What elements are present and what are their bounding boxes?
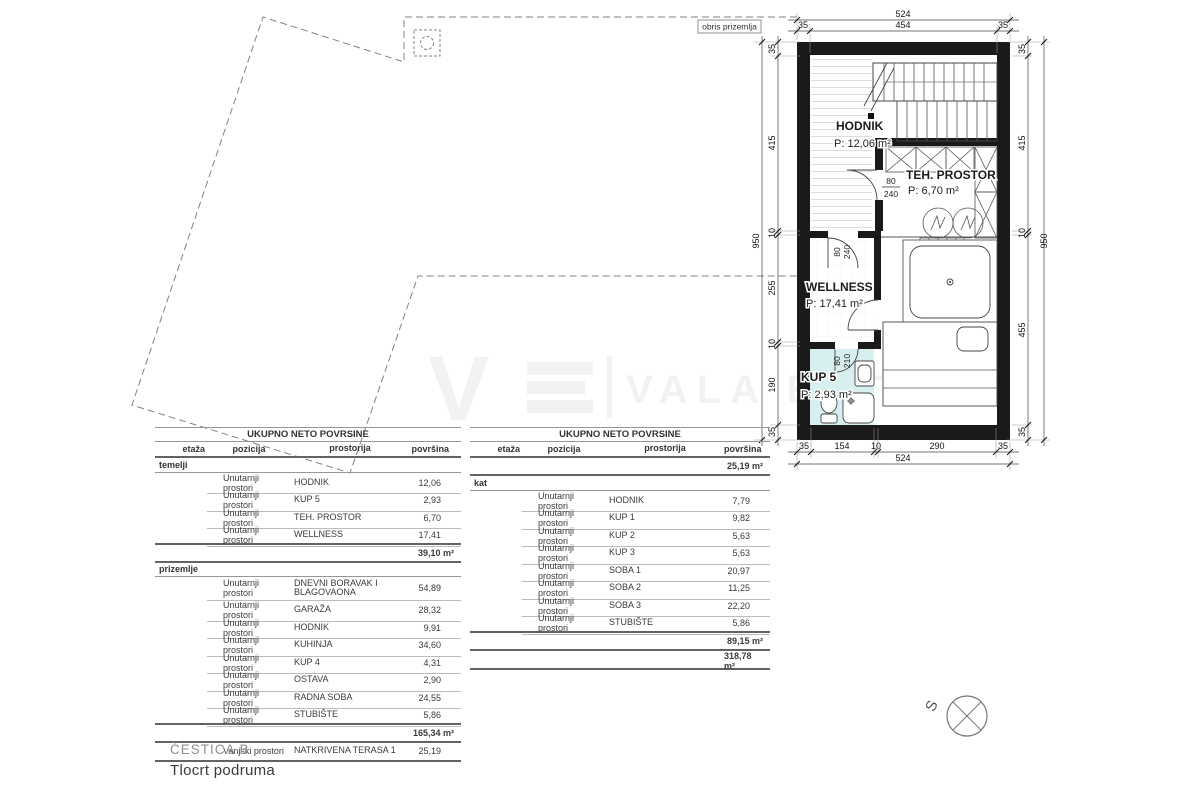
area-table-upper-floor: UKUPNO NETO POVRSINE etaža pozicija pros… [470, 427, 770, 670]
cell-pozicija: Unutarnji prostori [207, 705, 291, 727]
section-sum-row: 39,10 m² [155, 543, 461, 563]
dim-label: 10 [767, 228, 777, 238]
cell-prostorija: STUBIŠTE [291, 705, 409, 727]
cell-prostorija: WELLNESS [291, 525, 409, 547]
interior-wall [875, 200, 883, 231]
col-pozicija: pozicija [207, 442, 291, 456]
table-row: Unutarnji prostori HODNIK 7,79 [470, 491, 770, 509]
interior-wall [875, 138, 997, 146]
door-width: 80 [832, 356, 842, 366]
parcel-label: ČESTICA B [170, 742, 250, 757]
table-row: Unutarnji prostori KUP 1 9,82 [470, 508, 770, 526]
col-pozicija: pozicija [522, 442, 606, 456]
interior-wall [858, 342, 881, 349]
outline-symbol [414, 30, 440, 56]
table-title: UKUPNO NETO POVRSINE [155, 427, 461, 442]
interior-wall [810, 342, 835, 349]
wellness-furniture [883, 240, 997, 406]
col-povrsina: površina [409, 442, 461, 456]
table-row: Unutarnji prostori KUP 2 5,63 [470, 526, 770, 544]
table-title: UKUPNO NETO POVRSINE [470, 427, 770, 442]
dim-label: 154 [834, 441, 849, 451]
floor-plan-sheet: V VALA ESTATE obris prizemlja [0, 0, 1200, 795]
watermark-logo-bar [527, 362, 593, 375]
dim-label: 35 [998, 20, 1008, 30]
section-sum: 89,15 m² [724, 633, 770, 649]
section-sum-row: 89,15 m² [470, 631, 770, 651]
cell-povrsina: 54,89 [409, 577, 461, 601]
door-height: 240 [884, 189, 898, 199]
cell-povrsina: 5,86 [409, 705, 461, 727]
dim-label: 10 [871, 441, 881, 451]
outline-label: obris prizemlja [702, 22, 757, 32]
col-prostorija: prostorija [291, 442, 409, 456]
col-prostorija: prostorija [606, 442, 724, 456]
interior-wall [858, 231, 881, 238]
room-name-kup5: KUP 5 [801, 370, 836, 384]
room-area-wellness: P: 17,41 m² [806, 298, 863, 310]
interior-wall [874, 238, 881, 300]
boiler-icon [953, 208, 983, 238]
section-temelji: temelji [155, 458, 461, 473]
dim-label: 290 [929, 441, 944, 451]
dim-label: 255 [767, 280, 777, 295]
table-row: Unutarnji prostori SOBA 1 20,97 [470, 561, 770, 579]
table-row: Unutarnji prostori KUP 5 2,93 [155, 490, 461, 508]
dim-label: 35 [1017, 44, 1027, 54]
cell-pozicija: Unutarnji prostori [522, 613, 606, 635]
stair-treads-lower [907, 101, 987, 141]
dim-label: 454 [895, 20, 910, 30]
dimensions-right: 35 415 10 455 35 950 [1007, 36, 1050, 446]
col-etaza: etaža [155, 442, 207, 456]
table-column-headers: etaža pozicija prostorija površina [470, 442, 770, 458]
table-row: Unutarnji prostori OSTAVA 2,90 [155, 670, 461, 688]
table-row: Unutarnji prostori SOBA 2 11,25 [470, 578, 770, 596]
dim-label: 455 [1017, 322, 1027, 337]
dim-label: 415 [1017, 135, 1027, 150]
table-row: Unutarnji prostori KUP 4 4,31 [155, 653, 461, 671]
interior-wall [810, 231, 828, 238]
section-sum-row: 165,34 m² [155, 723, 461, 743]
cell-pozicija: Unutarnji prostori [207, 577, 291, 601]
cell-povrsina: 5,86 [724, 613, 770, 635]
jacuzzi-drain-dot [949, 281, 951, 283]
table-row: Unutarnji prostori WELLNESS 17,41 [155, 525, 461, 543]
outline-symbol-circle [421, 37, 434, 50]
grand-total-row: 318,78 m² [470, 651, 770, 670]
room-name-wellness: WELLNESS [806, 280, 873, 294]
room-area-kup5: P: 2,93 m² [801, 389, 852, 401]
table-row: Unutarnji prostori TEH. PROSTOR 6,70 [155, 508, 461, 526]
table-row: Unutarnji prostori RADNA SOBA 24,55 [155, 688, 461, 706]
table-row: Unutarnji prostori STUBIŠTE 5,86 [155, 705, 461, 723]
watermark-logo-bar [527, 381, 585, 394]
room-name-teh-prostor: TEH. PROSTOR [906, 168, 996, 182]
table-row: Unutarnji prostori STUBIŠTE 5,86 [470, 613, 770, 631]
cell-povrsina: 25,19 [409, 743, 461, 760]
dim-label: 950 [1039, 233, 1049, 248]
boiler-mark [961, 216, 975, 230]
dim-label: 10 [1017, 228, 1027, 238]
room-area-teh-prostor: P: 6,70 m² [908, 185, 959, 197]
dim-label: 10 [767, 339, 777, 349]
compass-north-label: S [922, 698, 942, 714]
table-row: Unutarnji prostori HODNIK 12,06 [155, 473, 461, 491]
interior-wall [874, 330, 881, 342]
dim-label: 35 [998, 441, 1008, 451]
section-kat: kat [470, 476, 770, 491]
dim-label: 524 [895, 453, 910, 463]
door-height: 210 [842, 354, 852, 368]
watermark-logo-bar [527, 400, 593, 413]
grand-total: 318,78 m² [724, 651, 770, 671]
table-row: Unutarnji prostori KUP 3 5,63 [470, 543, 770, 561]
dim-label: 190 [767, 377, 777, 392]
cell-povrsina: 17,41 [409, 525, 461, 547]
dim-label: 415 [767, 135, 777, 150]
carry-sum-row: 25,19 m² [470, 458, 770, 476]
cell-pozicija: Unutarnji prostori [207, 525, 291, 547]
table-row: Unutarnji prostori GARAŽA 28,32 [155, 600, 461, 618]
cell-prostorija: DNEVNI BORAVAK I BLAGOVAONA [291, 577, 409, 601]
dim-label: 524 [895, 9, 910, 19]
table-row: Unutarnji prostori HODNIK 9,91 [155, 618, 461, 636]
table-row: Unutarnji prostori DNEVNI BORAVAK I BLAG… [155, 577, 461, 600]
section-sum: 39,10 m² [409, 545, 461, 561]
compass: S [922, 696, 987, 736]
watermark-logo-v: V [428, 338, 489, 440]
dim-label: 35 [1017, 427, 1027, 437]
dim-label: 950 [751, 233, 761, 248]
room-area-hodnik: P: 12,06 m² [834, 138, 891, 150]
toilet-tank [821, 414, 837, 423]
table-row: Unutarnji prostori SOBA 3 22,20 [470, 596, 770, 614]
watermark-divider [607, 356, 612, 418]
massage-bed [883, 322, 997, 406]
dim-label: 35 [799, 441, 809, 451]
dim-label: 35 [767, 44, 777, 54]
carry-sum: 25,19 m² [724, 458, 770, 474]
table-row: Unutarnji prostori KUHINJA 34,60 [155, 635, 461, 653]
cell-prostorija: NATKRIVENA TERASA 1 [291, 743, 409, 760]
section-sum: 165,34 m² [409, 725, 461, 741]
door-height: 240 [842, 245, 852, 259]
dim-label: 35 [798, 20, 808, 30]
area-table-basement-ground: UKUPNO NETO POVRSINE etaža pozicija pros… [155, 427, 461, 762]
door-width: 80 [832, 247, 842, 257]
table-column-headers: etaža pozicija prostorija površina [155, 442, 461, 458]
door-width: 80 [886, 176, 896, 186]
drawing-title: Tlocrt podruma [170, 762, 275, 779]
section-prizemlje: prizemlje [155, 563, 461, 578]
col-povrsina: površina [724, 442, 774, 456]
boiler-mark [931, 216, 945, 230]
col-etaza: etaža [470, 442, 522, 456]
cell-prostorija: STUBIŠTE [606, 613, 724, 635]
boiler-icon [923, 208, 953, 238]
room-name-hodnik: HODNIK [836, 119, 884, 133]
